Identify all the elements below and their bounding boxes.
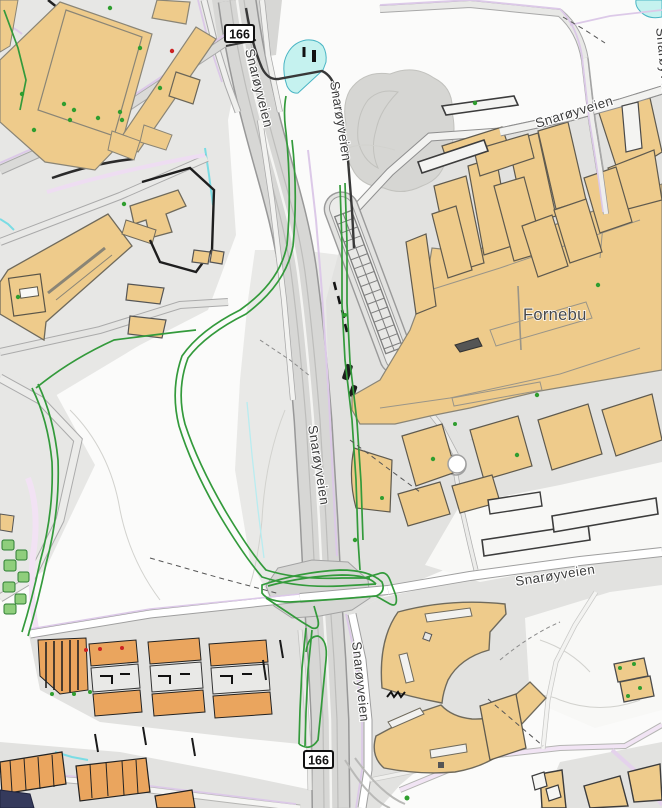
svg-text:166: 166 [308, 754, 329, 768]
svg-text:Fornebu: Fornebu [523, 306, 587, 324]
svg-text:166: 166 [229, 28, 250, 42]
